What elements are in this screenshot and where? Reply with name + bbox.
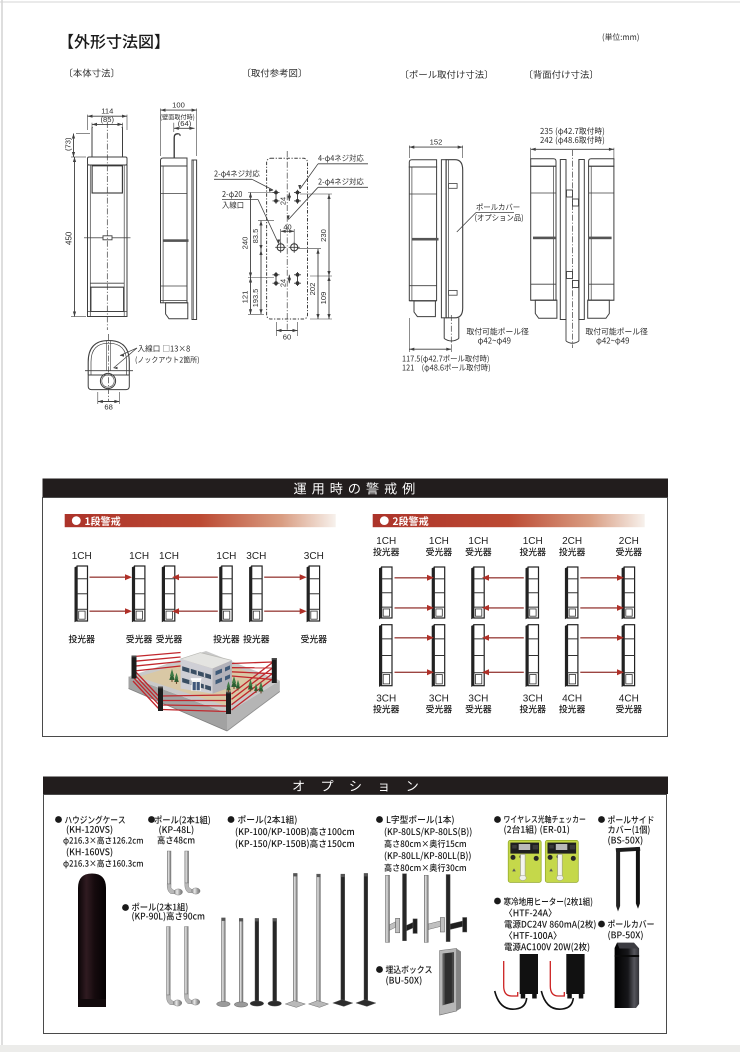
svg-text:1CH: 1CH — [376, 536, 396, 547]
svg-text:24: 24 — [279, 279, 288, 287]
svg-text:121: 121 — [241, 291, 250, 304]
svg-text:24: 24 — [279, 197, 288, 205]
svg-text:(64): (64) — [178, 119, 192, 128]
svg-text:1CH: 1CH — [468, 536, 488, 547]
svg-text:193.5: 193.5 — [251, 289, 260, 308]
svg-text:40: 40 — [283, 223, 291, 232]
svg-text:450: 450 — [65, 231, 74, 245]
svg-text:1CH: 1CH — [216, 551, 236, 562]
svg-text:109: 109 — [319, 292, 328, 305]
svg-text:(85): (85) — [101, 115, 115, 124]
svg-text:152: 152 — [430, 137, 443, 146]
svg-text:60: 60 — [283, 333, 291, 342]
svg-text:3CH: 3CH — [246, 551, 266, 562]
svg-text:202: 202 — [308, 283, 317, 296]
svg-text:1CH: 1CH — [72, 551, 92, 562]
svg-text:(73): (73) — [64, 137, 73, 151]
svg-text:3CH: 3CH — [304, 551, 324, 562]
svg-text:4CH: 4CH — [619, 694, 639, 705]
svg-text:3CH: 3CH — [523, 694, 543, 705]
svg-text:1CH: 1CH — [523, 536, 543, 547]
svg-text:2CH: 2CH — [562, 536, 582, 547]
svg-text:230: 230 — [319, 229, 328, 242]
svg-text:4CH: 4CH — [562, 694, 582, 705]
svg-text:1CH: 1CH — [429, 536, 449, 547]
svg-text:240: 240 — [241, 237, 250, 250]
svg-text:83.5: 83.5 — [251, 229, 260, 243]
svg-text:3CH: 3CH — [429, 694, 449, 705]
svg-text:3CH: 3CH — [468, 694, 488, 705]
svg-text:1CH: 1CH — [159, 551, 179, 562]
svg-text:3CH: 3CH — [376, 694, 396, 705]
svg-text:100: 100 — [172, 101, 185, 110]
svg-text:2CH: 2CH — [619, 536, 639, 547]
svg-text:68: 68 — [104, 403, 112, 412]
svg-text:1CH: 1CH — [129, 551, 149, 562]
